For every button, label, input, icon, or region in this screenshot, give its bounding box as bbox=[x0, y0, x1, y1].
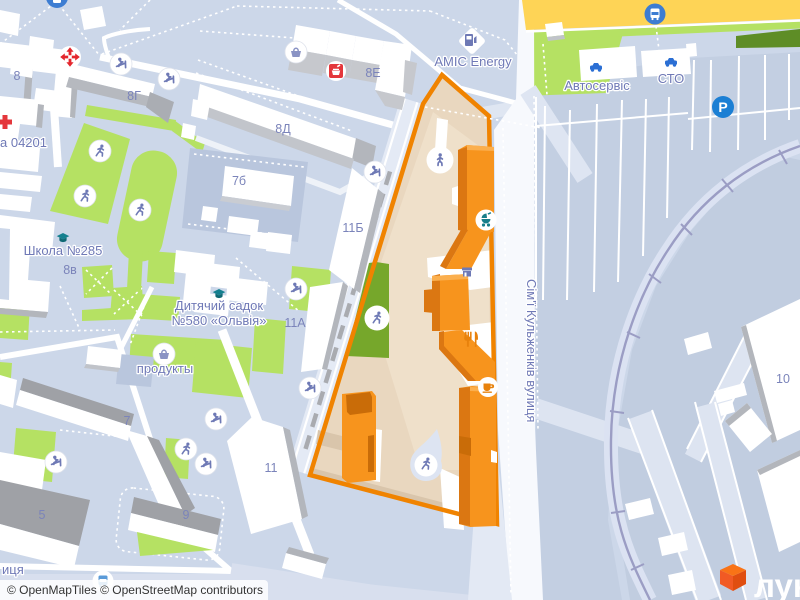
svg-text:Дитячий садок: Дитячий садок bbox=[175, 298, 264, 313]
svg-text:а 04201: а 04201 bbox=[0, 135, 47, 150]
svg-text:8Д: 8Д bbox=[275, 122, 291, 136]
svg-text:Автосервіс: Автосервіс bbox=[564, 78, 630, 93]
svg-text:Школа №285: Школа №285 bbox=[24, 243, 103, 258]
svg-text:8Г: 8Г bbox=[127, 89, 141, 103]
svg-text:P: P bbox=[718, 99, 727, 115]
svg-text:продукты: продукты bbox=[137, 361, 193, 376]
svg-text:№580 «Ольвія»: №580 «Ольвія» bbox=[172, 313, 267, 328]
svg-text:© OpenMapTiles © OpenStreetMap: © OpenMapTiles © OpenStreetMap contribut… bbox=[7, 583, 263, 597]
svg-text:8в: 8в bbox=[63, 263, 77, 277]
svg-text:СТО: СТО bbox=[658, 71, 684, 86]
svg-text:10: 10 bbox=[776, 372, 790, 386]
svg-text:Сім'ї Кульженків вулиця: Сім'ї Кульженків вулиця bbox=[524, 279, 539, 422]
svg-text:лун: лун bbox=[754, 567, 800, 600]
svg-text:9: 9 bbox=[183, 508, 190, 522]
svg-text:5: 5 bbox=[39, 508, 46, 522]
svg-text:AMIC Energy: AMIC Energy bbox=[434, 54, 512, 69]
svg-text:7б: 7б bbox=[232, 174, 246, 188]
svg-text:11А: 11А bbox=[284, 316, 306, 330]
svg-text:11Б: 11Б bbox=[342, 221, 363, 235]
svg-text:8: 8 bbox=[14, 69, 21, 83]
svg-text:7: 7 bbox=[124, 414, 131, 428]
svg-text:11: 11 bbox=[265, 461, 278, 475]
svg-text:иця: иця bbox=[2, 562, 24, 577]
svg-text:8Е: 8Е bbox=[365, 66, 380, 80]
